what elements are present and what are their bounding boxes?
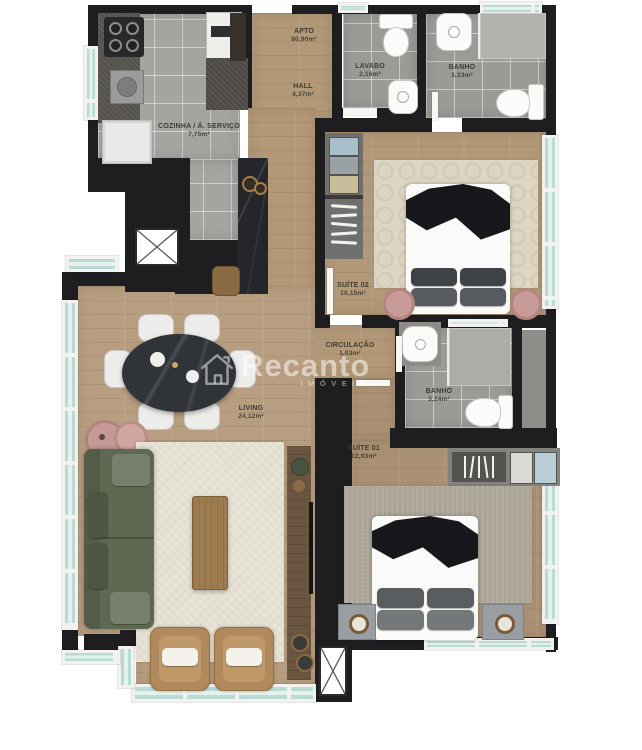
- sink-bowl: [117, 77, 137, 97]
- window-glass: [341, 6, 365, 10]
- wardrobe-suite02: [325, 133, 363, 259]
- laundry-counter: [206, 58, 248, 110]
- room-label-banho-suite: BANHO 3,24m²: [426, 387, 453, 405]
- room-label-banho-social: BANHO 3,33m²: [449, 63, 476, 81]
- table-decor: [172, 362, 178, 368]
- room-name: CIRCULAÇÃO: [325, 341, 374, 350]
- wall-segment: [462, 118, 548, 132]
- wardrobe-shelf: [329, 137, 359, 156]
- room-label-lavabo: LAVABO 2,16m²: [355, 62, 385, 80]
- room-area: 7,75m²: [158, 131, 240, 140]
- island-decor: [254, 182, 267, 195]
- hanger-icon: [469, 456, 474, 478]
- room-label-apto: APTO 80,90m²: [291, 27, 317, 45]
- hanger-icon: [331, 240, 357, 244]
- bed-pillow: [427, 588, 474, 608]
- lamp-icon: [495, 614, 515, 634]
- armchair: [150, 627, 210, 691]
- suite02-door: [327, 268, 333, 314]
- shaft-x: [319, 646, 347, 696]
- armchair: [214, 627, 274, 691]
- bed-pillow: [427, 610, 474, 630]
- room-area: 1,03m²: [325, 350, 374, 359]
- wall-segment: [315, 118, 432, 132]
- burner-icon: [126, 39, 139, 52]
- kitchen-island: [238, 158, 268, 294]
- sink-drain: [397, 91, 409, 103]
- banho-suite-sink: [402, 326, 438, 362]
- wall-segment: [332, 13, 342, 120]
- wardrobe-shelf: [329, 156, 359, 175]
- pouf-button: [99, 434, 105, 440]
- room-name: BANHO: [426, 387, 453, 396]
- wall-segment: [417, 13, 426, 120]
- window: [84, 46, 98, 120]
- room-area: 24,12m²: [238, 413, 264, 422]
- floor-plan: APTO 80,90m² HALL 4,37m² LAVABO 2,16m² B…: [0, 0, 642, 750]
- bed-throw: [406, 184, 510, 242]
- room-area: 10,15m²: [337, 290, 369, 299]
- shower-box: [478, 13, 546, 59]
- sink-drain: [415, 339, 426, 350]
- lamp-icon: [349, 614, 369, 634]
- shower-box: [447, 328, 511, 386]
- bed-pillow: [460, 268, 506, 286]
- hanger-icon: [492, 456, 494, 478]
- duct-column: [522, 330, 548, 428]
- room-label-living: LIVING 24,12m²: [238, 404, 264, 422]
- window-glass: [121, 649, 131, 685]
- lavabo-door: [344, 109, 376, 115]
- kitchen-sink: [110, 70, 144, 104]
- wall-segment: [62, 630, 78, 652]
- bed-pillow: [377, 610, 424, 630]
- pouf: [383, 288, 415, 320]
- wardrobe-hanger-section: [452, 452, 506, 482]
- plate: [150, 352, 165, 367]
- room-label-suite01: SUÍTE 01 12,63m²: [348, 444, 380, 462]
- tv-console: [287, 446, 311, 680]
- sink-drain: [448, 26, 460, 38]
- bed-suite02: [406, 184, 510, 314]
- nightstand: [482, 604, 524, 640]
- wall-segment: [315, 130, 325, 315]
- toilet-bowl: [465, 398, 501, 427]
- window: [118, 646, 134, 688]
- room-name: HALL: [292, 82, 314, 91]
- room-area: 4,37m²: [292, 91, 314, 100]
- bed-pillow: [377, 588, 424, 608]
- armchair-pillow: [162, 648, 198, 666]
- bed-pillow: [411, 288, 457, 306]
- room-name: SUÍTE 01: [348, 444, 380, 453]
- room-name: SUÍTE 02: [337, 281, 369, 290]
- window-glass: [87, 49, 95, 117]
- hanger-icon: [464, 456, 466, 478]
- wall-segment: [315, 315, 330, 328]
- window: [542, 135, 558, 309]
- room-name: APTO: [291, 27, 317, 36]
- pouf: [510, 288, 542, 320]
- window-glass: [65, 303, 75, 627]
- sofa: [84, 449, 154, 629]
- wall-segment: [62, 272, 192, 286]
- room-name: LAVABO: [355, 62, 385, 71]
- speaker-icon: [296, 654, 314, 672]
- banho-sink: [436, 13, 472, 51]
- room-area: 3,33m²: [449, 72, 476, 81]
- plant-icon: [291, 458, 309, 476]
- sofa-bolster: [88, 492, 108, 538]
- bed-pillow: [460, 288, 506, 306]
- toilet-tank: [528, 84, 544, 120]
- lavabo-sink: [388, 80, 418, 114]
- window-glass: [545, 138, 555, 306]
- shaft-x-icon: [321, 648, 345, 694]
- wardrobe-divider: [325, 195, 363, 199]
- sofa-pillow: [112, 454, 150, 486]
- wall-segment: [390, 428, 557, 448]
- nightstand: [338, 604, 376, 640]
- sofa-bolster: [88, 543, 108, 589]
- hanger-icon: [331, 222, 357, 227]
- banho-door: [432, 92, 438, 120]
- suite01-door: [356, 380, 390, 386]
- wardrobe-suite01: [448, 448, 560, 486]
- hanger-icon: [483, 456, 488, 478]
- plate: [186, 370, 199, 383]
- toilet-bowl: [496, 89, 530, 117]
- window: [66, 256, 118, 272]
- dining-table: [122, 334, 236, 412]
- console-decor: [293, 480, 305, 492]
- room-label-suite02: SUÍTE 02 10,15m²: [337, 281, 369, 299]
- speaker-icon: [291, 634, 309, 652]
- hanger-icon: [331, 213, 357, 217]
- burner-icon: [126, 22, 139, 35]
- wardrobe-shelf: [510, 452, 533, 484]
- balcony-window: [62, 300, 78, 630]
- bed-throw: [372, 516, 478, 570]
- entrance-door: [230, 13, 246, 61]
- banho-suite-door: [396, 336, 402, 372]
- wall-segment: [512, 318, 522, 438]
- room-name: LIVING: [238, 404, 264, 413]
- room-label-hall: HALL 4,37m²: [292, 82, 314, 100]
- hanger-icon: [331, 231, 357, 236]
- wardrobe-shelf: [329, 175, 359, 194]
- room-area: 3,24m²: [426, 396, 453, 405]
- window-glass: [427, 641, 551, 647]
- window: [338, 3, 368, 13]
- coffee-table: [192, 496, 228, 590]
- sofa-seam: [100, 537, 154, 539]
- window-glass: [483, 5, 539, 12]
- armchair-pillow: [226, 648, 262, 666]
- cooktop: [104, 17, 144, 57]
- window-glass: [451, 322, 505, 324]
- hanger-icon: [331, 204, 357, 209]
- bed-suite01: [372, 516, 478, 640]
- hanger-icon: [478, 456, 480, 478]
- toilet-bowl: [383, 27, 409, 57]
- room-label-cozinha: COZINHA / Á. SERVIÇO 7,75m²: [158, 122, 240, 140]
- fridge: [102, 120, 152, 164]
- room-area: 12,63m²: [348, 453, 380, 462]
- room-name: COZINHA / Á. SERVIÇO: [158, 122, 240, 131]
- room-label-circulacao: CIRCULAÇÃO 1,03m²: [325, 341, 374, 359]
- sofa-pillow: [110, 592, 150, 624]
- wardrobe-shelf: [534, 452, 557, 484]
- sofa-back: [84, 449, 100, 629]
- room-name: BANHO: [449, 63, 476, 72]
- room-area: 80,90m²: [291, 36, 317, 45]
- window-glass: [65, 653, 117, 661]
- wall-segment: [62, 286, 78, 300]
- suite01-entry-floor: [352, 378, 395, 440]
- wall-segment: [88, 5, 98, 48]
- burner-icon: [109, 39, 122, 52]
- window: [62, 650, 120, 664]
- stool: [212, 266, 240, 296]
- shaft-x-icon: [137, 230, 177, 264]
- elevator-shaft-x: [135, 228, 179, 266]
- room-area: 2,16m²: [355, 71, 385, 80]
- clerestory-window: [448, 319, 508, 327]
- window-glass: [69, 259, 115, 269]
- bed-pillow: [411, 268, 457, 286]
- burner-icon: [109, 22, 122, 35]
- tv: [309, 502, 313, 594]
